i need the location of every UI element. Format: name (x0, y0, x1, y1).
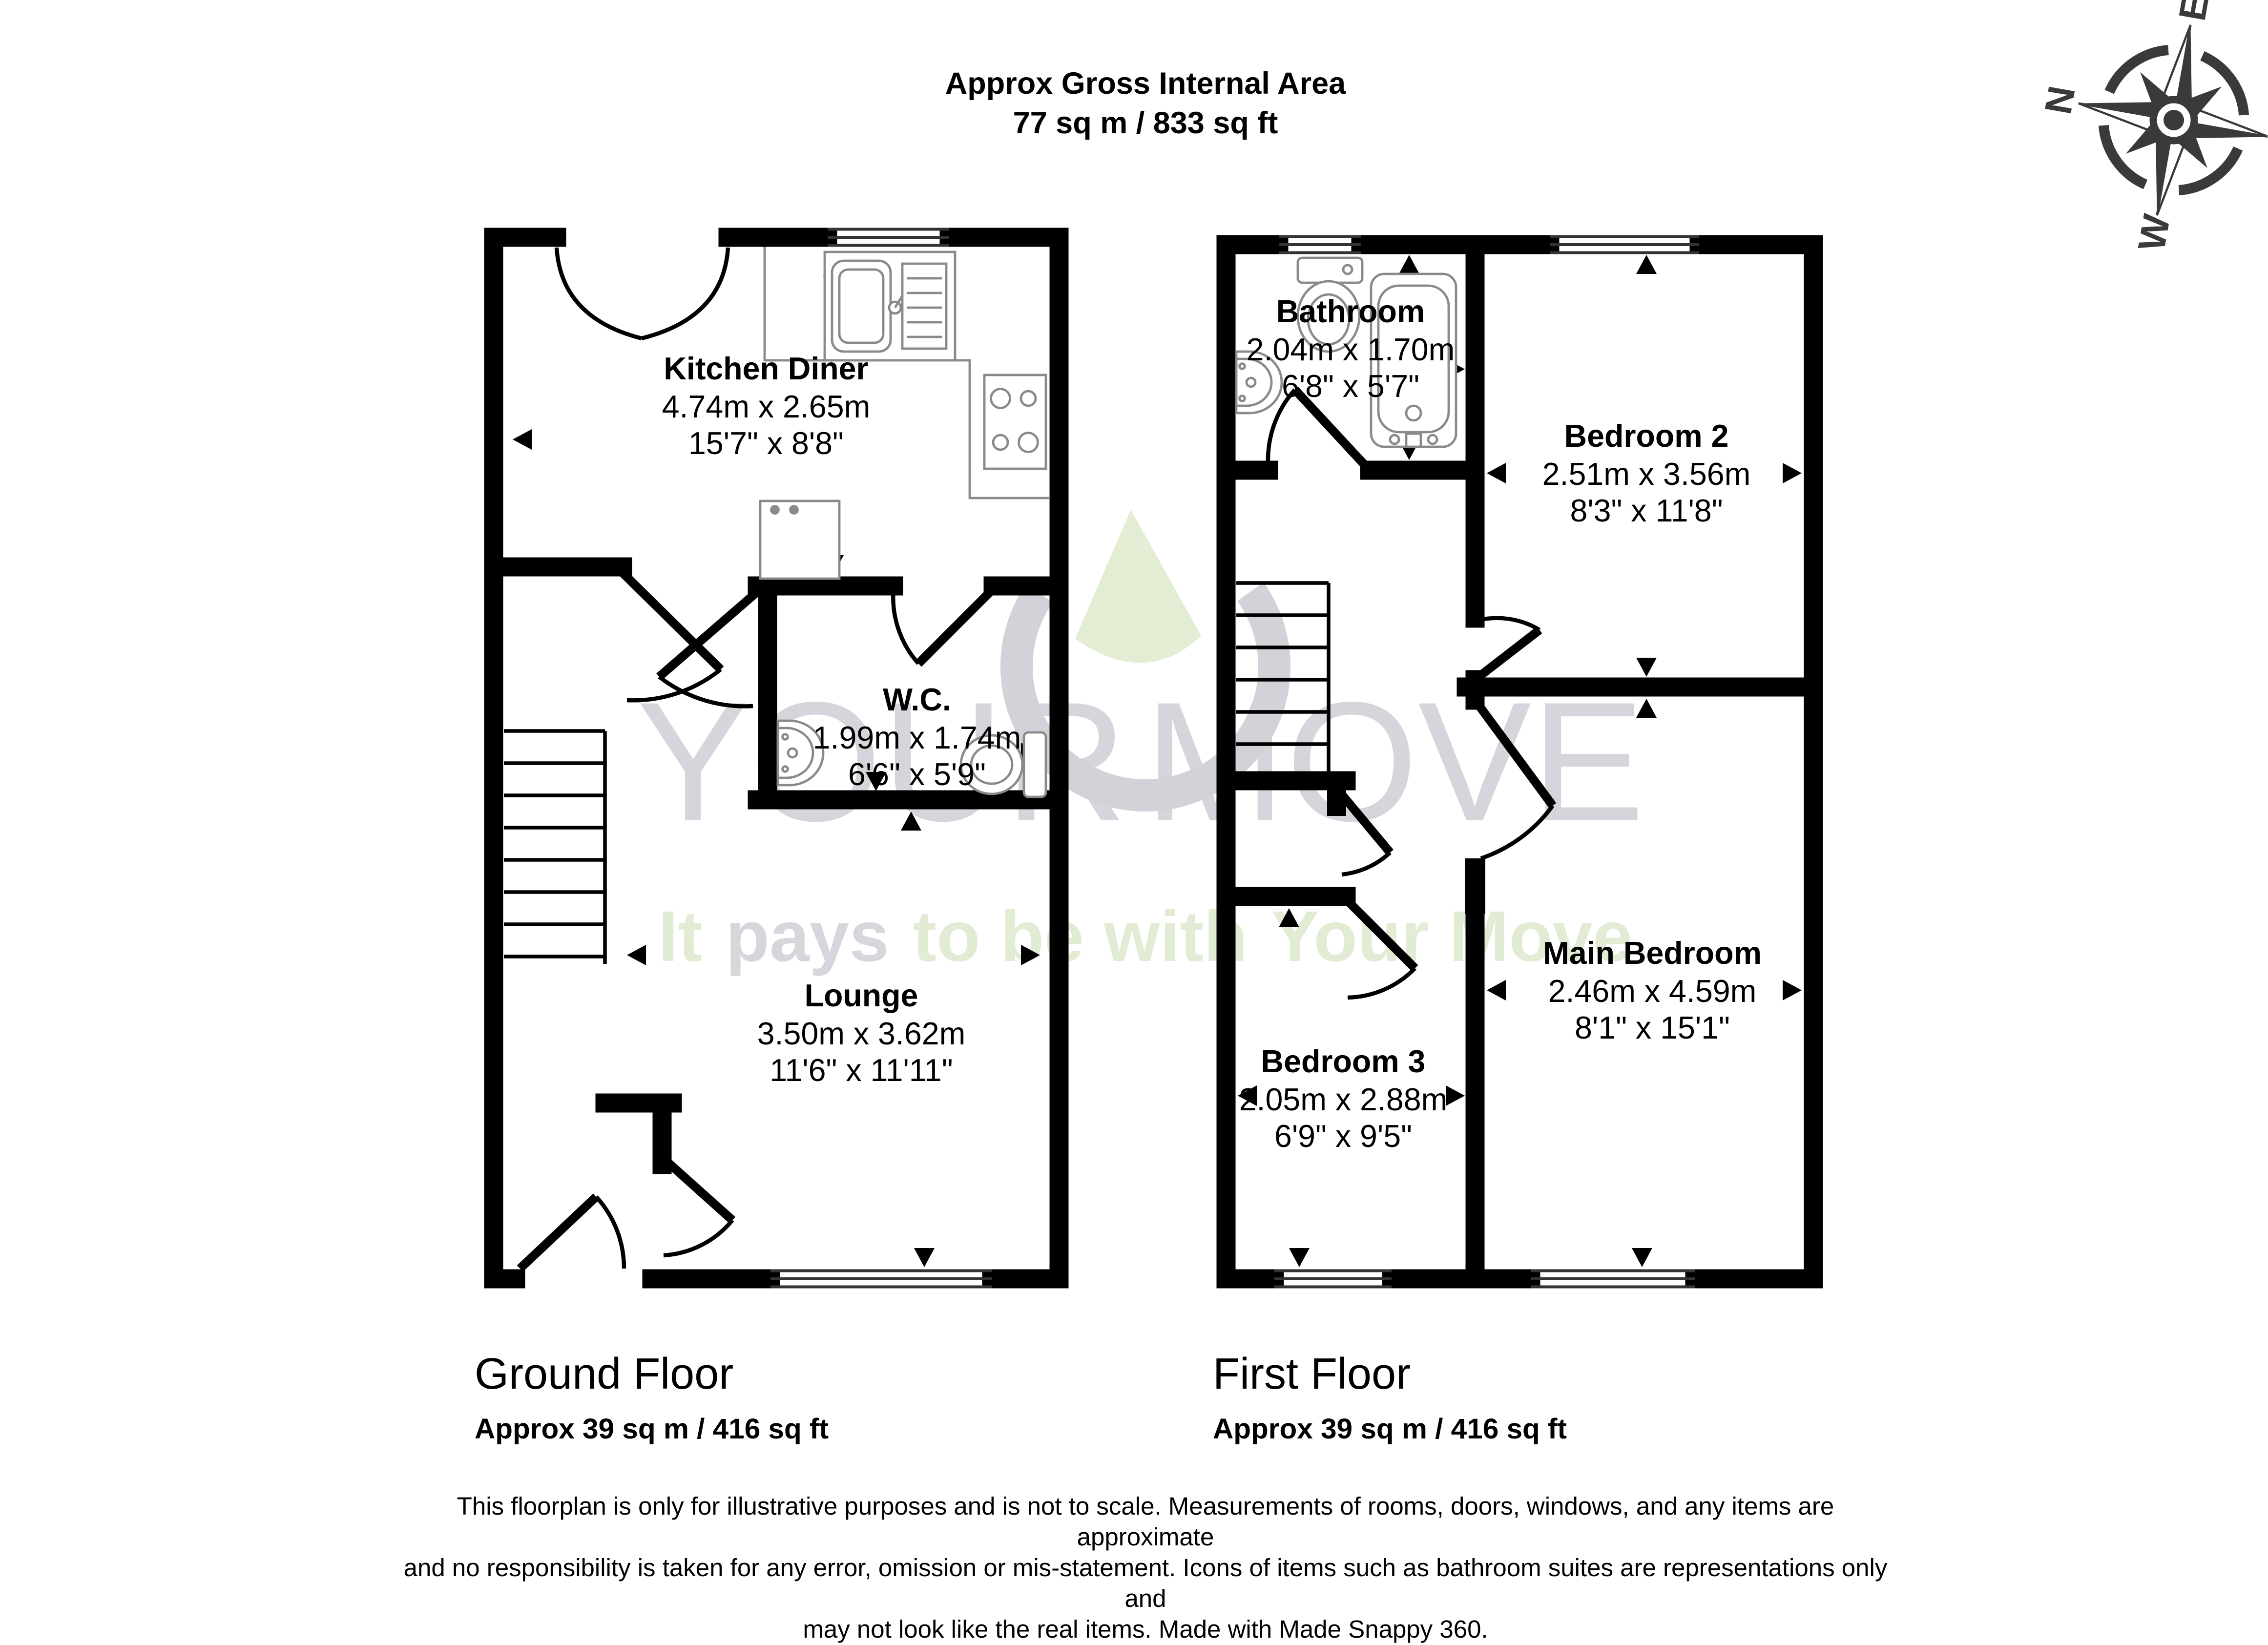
room-name: Main Bedroom (1491, 936, 1813, 974)
floorplan-page: YOUR MOVE Itpaysto be withYour Move (0, 0, 2268, 1597)
room-size-metric: 1.99m x 1.74m (756, 720, 1078, 758)
room-name: Bedroom 2 (1485, 419, 1808, 457)
room-size-metric: 2.51m x 3.56m (1485, 457, 1808, 494)
room-size-metric: 3.50m x 3.62m (700, 1016, 1022, 1054)
room-size-imperial: 15'7" x 8'8" (605, 426, 927, 464)
room-size-imperial: 11'6" x 11'11" (700, 1053, 1022, 1091)
room-size-imperial: 6'8" x 5'7" (1189, 369, 1512, 407)
room-size-metric: 2.46m x 4.59m (1491, 974, 1813, 1011)
stairs-first-floor (1236, 583, 1329, 772)
room-name: W.C. (756, 683, 1078, 720)
floorplan-drawing: N E S W (0, 0, 2268, 1597)
room-label-kitchen-diner: Kitchen Diner 4.74m x 2.65m 15'7" x 8'8" (605, 352, 927, 464)
floor-name: Ground Floor (475, 1351, 829, 1400)
room-label-bathroom: Bathroom 2.04m x 1.70m 6'8" x 5'7" (1189, 294, 1512, 407)
disclaimer-line2: and no responsibility is taken for any e… (401, 1553, 1890, 1614)
room-size-metric: 4.74m x 2.65m (605, 389, 927, 427)
gross-internal-area-title: Approx Gross Internal Area 77 sq m / 833… (853, 64, 1438, 144)
compass-east-label: E (2170, 0, 2217, 24)
room-label-lounge: Lounge 3.50m x 3.62m 11'6" x 11'11" (700, 979, 1022, 1091)
room-size-metric: 2.05m x 2.88m (1182, 1082, 1504, 1120)
room-name: Bathroom (1189, 294, 1512, 332)
floor-area: Approx 39 sq m / 416 sq ft (475, 1414, 829, 1447)
title-line1: Approx Gross Internal Area (853, 64, 1438, 104)
ground-floor-caption: Ground Floor Approx 39 sq m / 416 sq ft (475, 1351, 829, 1447)
room-label-bedroom-3: Bedroom 3 2.05m x 2.88m 6'9" x 9'5" (1182, 1044, 1504, 1157)
room-size-imperial: 6'6" x 5'9" (756, 757, 1078, 795)
room-label-wc: W.C. 1.99m x 1.74m 6'6" x 5'9" (756, 683, 1078, 795)
room-name: Kitchen Diner (605, 352, 927, 389)
compass-north-label: N (2036, 83, 2083, 117)
first-floor-caption: First Floor Approx 39 sq m / 416 sq ft (1213, 1351, 1567, 1447)
disclaimer-text: This floorplan is only for illustrative … (401, 1491, 1890, 1645)
room-label-bedroom-2: Bedroom 2 2.51m x 3.56m 8'3" x 11'8" (1485, 419, 1808, 531)
room-name: Bedroom 3 (1182, 1044, 1504, 1082)
room-size-imperial: 8'3" x 11'8" (1485, 494, 1808, 531)
disclaimer-line3: may not look like the real items. Made w… (401, 1614, 1890, 1645)
stairs-ground-floor (504, 731, 605, 964)
compass-rose-icon: N E S W (2016, 0, 2268, 274)
room-size-imperial: 6'9" x 9'5" (1182, 1119, 1504, 1157)
floor-name: First Floor (1213, 1351, 1567, 1400)
compass-west-label: W (2130, 211, 2179, 254)
room-size-imperial: 8'1" x 15'1" (1491, 1011, 1813, 1048)
compass-south-label: S (2265, 124, 2268, 157)
floor-area: Approx 39 sq m / 416 sq ft (1213, 1414, 1567, 1447)
room-name: Lounge (700, 979, 1022, 1016)
title-line2: 77 sq m / 833 sq ft (853, 104, 1438, 144)
room-label-main-bedroom: Main Bedroom 2.46m x 4.59m 8'1" x 15'1" (1491, 936, 1813, 1048)
room-size-metric: 2.04m x 1.70m (1189, 332, 1512, 370)
disclaimer-line1: This floorplan is only for illustrative … (401, 1491, 1890, 1553)
